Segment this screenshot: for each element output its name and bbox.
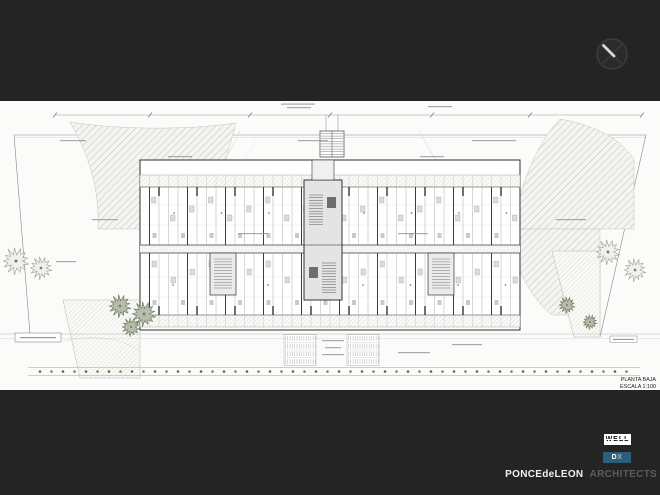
firm-logo: PONCEdeLEON ARCHITECTS bbox=[505, 469, 657, 480]
floor-plan-svg: PLANTA BAJA ESCALA 1:100 bbox=[0, 101, 660, 390]
dx-label-x: X bbox=[617, 454, 622, 461]
top-letterbox bbox=[0, 0, 660, 101]
firm-suffix: ARCHITECTS bbox=[590, 469, 657, 480]
circle-x-cursor-icon bbox=[595, 37, 629, 71]
entry-stair bbox=[320, 115, 344, 157]
drawing-sheet[interactable]: PLANTA BAJA ESCALA 1:100 bbox=[0, 101, 660, 390]
dx-badge: D X bbox=[603, 452, 631, 463]
plan-title: PLANTA BAJA bbox=[621, 377, 657, 383]
bicycle-parking bbox=[284, 335, 379, 366]
well-badge: WELL bbox=[604, 434, 631, 445]
firm-name: PONCEdeLEON bbox=[505, 469, 583, 480]
well-strike-line bbox=[606, 439, 629, 440]
slide-canvas: PLANTA BAJA ESCALA 1:100 WELL D X PONCEd… bbox=[0, 0, 660, 495]
